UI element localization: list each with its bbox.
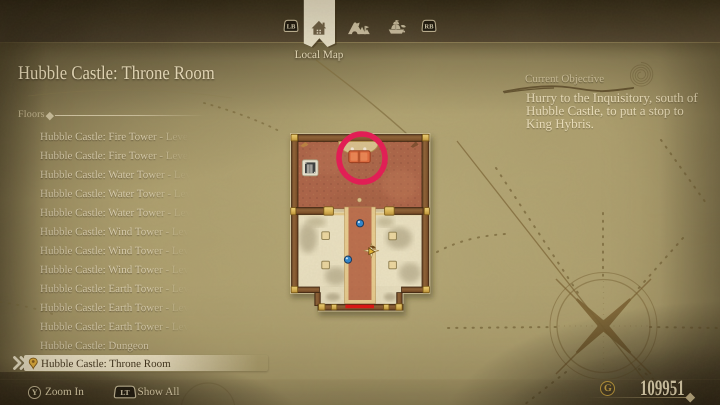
svg-text:LT: LT (120, 388, 129, 397)
